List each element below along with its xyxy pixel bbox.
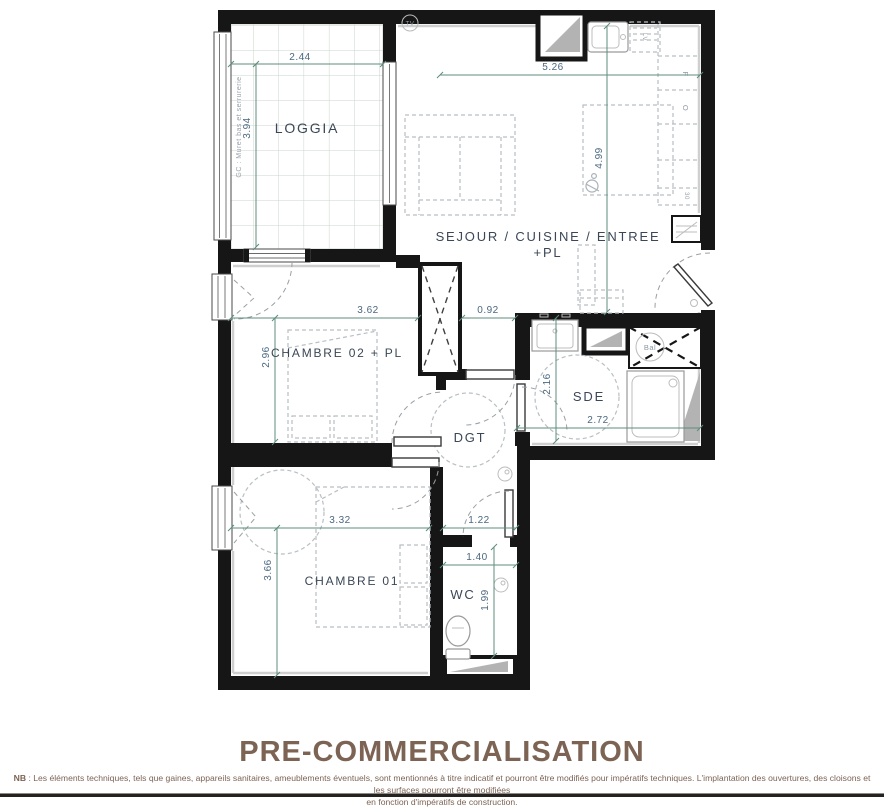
floor-plan: Bal — [0, 0, 884, 740]
chambre02-window — [212, 274, 232, 320]
entry-door — [655, 253, 712, 308]
note-prefix: NB — [14, 773, 26, 783]
kitchen-counter: F O 30 — [658, 24, 699, 205]
dim-entree-passage: 0.92 — [477, 305, 498, 316]
dim-sde-width: 2.72 — [587, 415, 608, 426]
label-sde: SDE — [573, 389, 605, 404]
niche-depth-label: 30 — [683, 192, 689, 200]
dim-wc-width: 1.40 — [466, 552, 487, 563]
gc-note: GC : Muret bas et serrurerie — [236, 76, 243, 177]
disclaimer-note: NB : Les éléments techniques, tels que g… — [9, 772, 875, 808]
dishwasher-label: LV — [641, 33, 647, 41]
dim-sejour-depth: 4.99 — [594, 147, 605, 168]
label-loggia: LOGGIA — [275, 120, 339, 136]
bed-chambre01 — [316, 487, 430, 627]
dim-wc-depth: 1.99 — [480, 589, 491, 610]
dim-sde-depth: 2.16 — [542, 373, 553, 394]
label-sejour-pl: +PL — [534, 245, 563, 260]
door-chambre02 — [392, 392, 443, 446]
dim-chambre02-width: 3.62 — [357, 305, 378, 316]
chambre01-casement — [234, 492, 256, 543]
door-sejour-dgt — [465, 370, 515, 425]
chambre02-casement — [234, 280, 254, 316]
dim-chambre01-depth: 3.66 — [263, 559, 274, 580]
door-wc — [463, 490, 513, 537]
fridge-label: F — [681, 71, 690, 76]
dim-dgt-width: 1.22 — [468, 515, 489, 526]
label-sejour: SEJOUR / CUISINE / ENTREE — [436, 229, 661, 244]
turning-circle-chambre01 — [240, 470, 324, 554]
chambre02-window-swing — [234, 262, 292, 319]
toilet — [446, 616, 470, 659]
dim-loggia-depth: 3.94 — [242, 117, 253, 138]
dim-loggia-width: 2.44 — [289, 52, 310, 63]
label-chambre02: CHAMBRE 02 + PL — [271, 346, 403, 360]
note-line2: en fonction d'impératifs de construction… — [366, 797, 517, 807]
chambre02-loggia-window — [244, 249, 310, 262]
page-title: PRE-COMMERCIALISATION — [0, 736, 884, 769]
svg-text:TV: TV — [406, 22, 415, 28]
washing-machine — [580, 290, 623, 313]
chambre01-window — [212, 486, 232, 550]
footer: PRE-COMMERCIALISATION NB : Les éléments … — [0, 736, 884, 808]
dgt-handwash — [498, 467, 512, 481]
label-chambre01: CHAMBRE 01 — [305, 574, 400, 588]
oven-label: O — [681, 105, 690, 111]
water-heater-label: Bal — [644, 343, 656, 352]
label-wc: WC — [450, 587, 475, 602]
bottom-divider — [0, 793, 884, 797]
dim-chambre01-width: 3.32 — [329, 515, 350, 526]
loggia-railing — [214, 32, 231, 240]
shower — [627, 371, 684, 442]
label-dgt: DGT — [454, 430, 487, 445]
wc-handwash — [494, 578, 508, 592]
dim-sejour-width: 5.26 — [542, 62, 563, 73]
wheelchair-icon — [586, 174, 599, 192]
kitchen-sink — [588, 22, 628, 52]
sofa — [405, 115, 515, 215]
note-line1: : Les éléments techniques, tels que gain… — [26, 773, 870, 795]
